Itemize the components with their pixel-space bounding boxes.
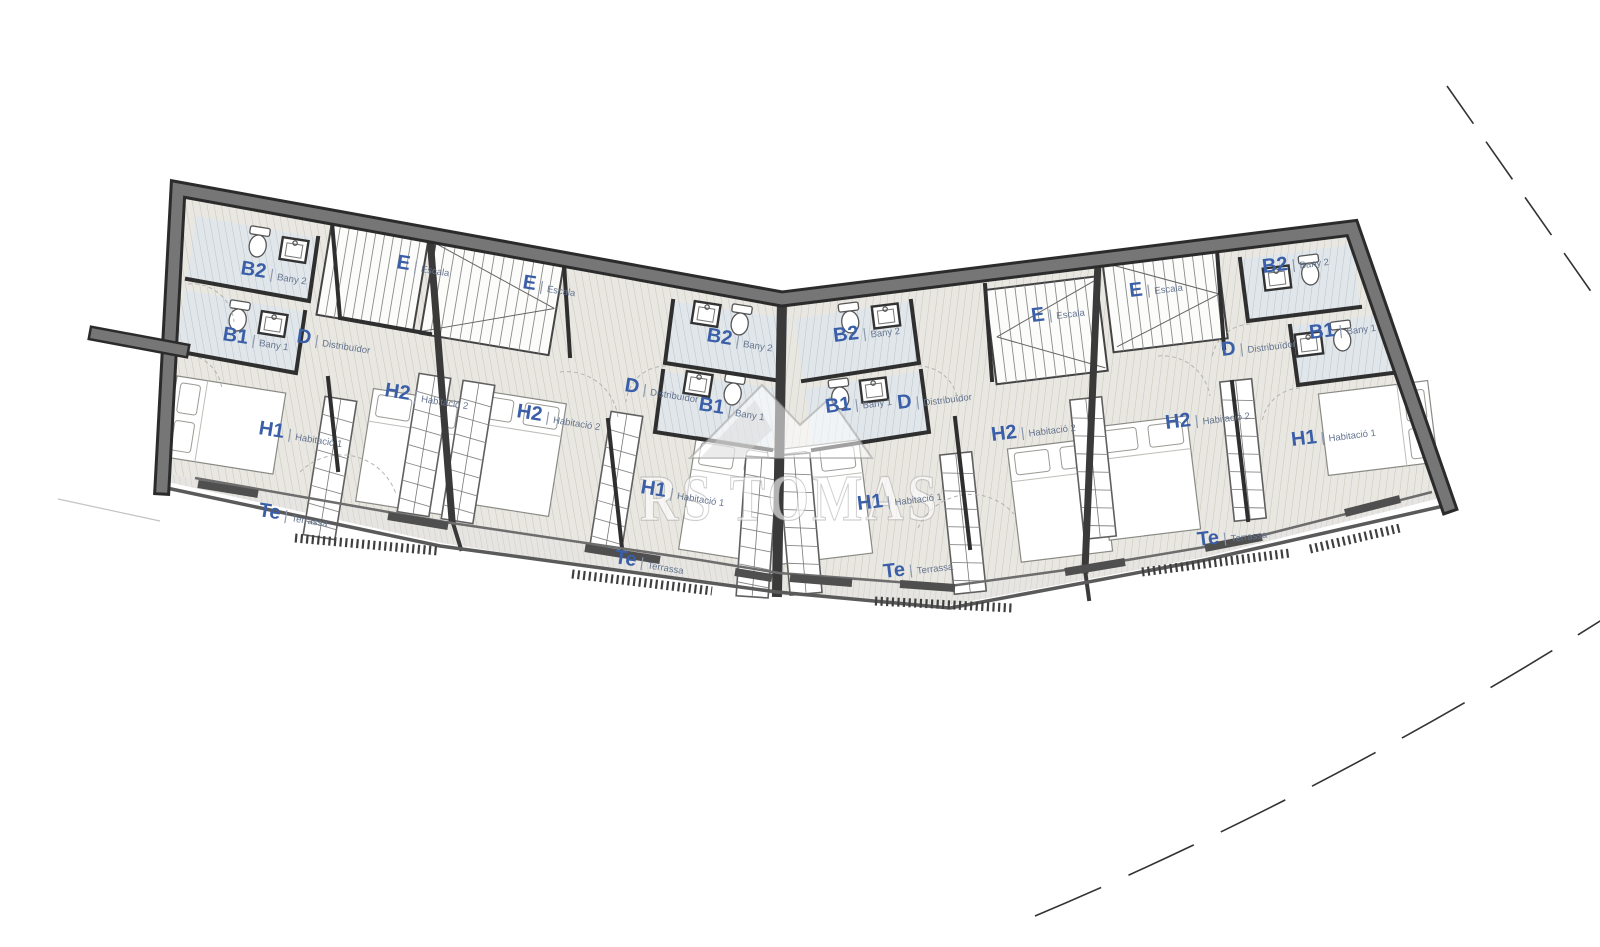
stairs-unit3	[985, 276, 1108, 384]
site-boundary-line-left	[58, 499, 160, 521]
site-boundary-line-bottom-right	[1035, 616, 1600, 916]
site-boundary-line-top-right	[1447, 86, 1600, 350]
floor-plan: RS TOMAS B2|Bany 2B1|Bany 1D|Distribuïdo…	[0, 0, 1600, 947]
